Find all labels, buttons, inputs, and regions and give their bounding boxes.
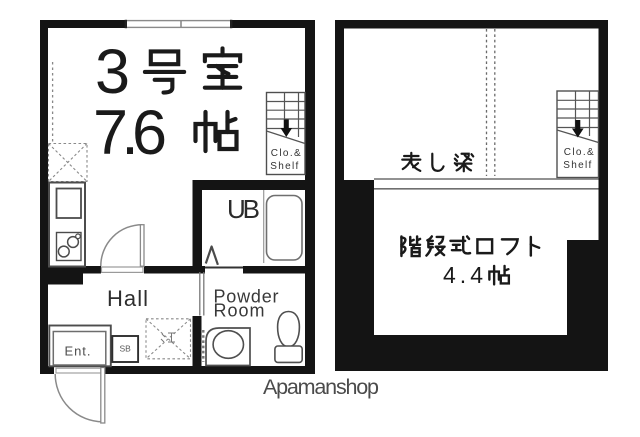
svg-text:7.6: 7.6	[93, 98, 167, 168]
svg-text:Hall: Hall	[107, 286, 148, 311]
svg-text:Ent.: Ent.	[65, 344, 91, 359]
svg-text:Room: Room	[214, 301, 265, 321]
svg-text:Apamanshop: Apamanshop	[263, 375, 379, 399]
svg-text:Clo.&: Clo.&	[564, 147, 594, 158]
svg-text:Clo.&: Clo.&	[271, 148, 301, 159]
svg-text:3: 3	[95, 37, 130, 107]
svg-text:UB: UB	[227, 194, 260, 224]
svg-text:SB: SB	[120, 344, 132, 354]
svg-text:4.4: 4.4	[443, 262, 483, 288]
